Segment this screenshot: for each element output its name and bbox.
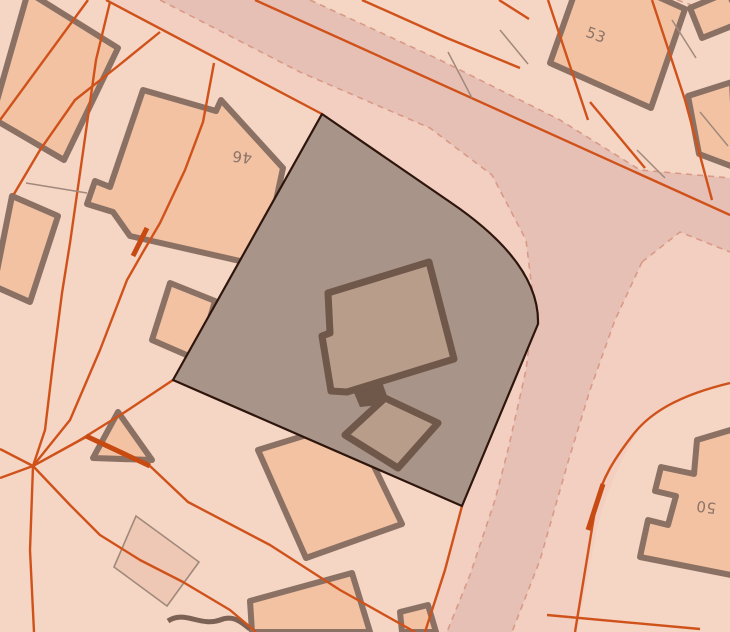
label-house-46: 46 xyxy=(231,147,253,167)
map-tile: 46 53 50 xyxy=(0,0,730,632)
map-canvas[interactable]: 46 53 50 xyxy=(0,0,730,632)
label-house-50: 50 xyxy=(695,497,717,517)
